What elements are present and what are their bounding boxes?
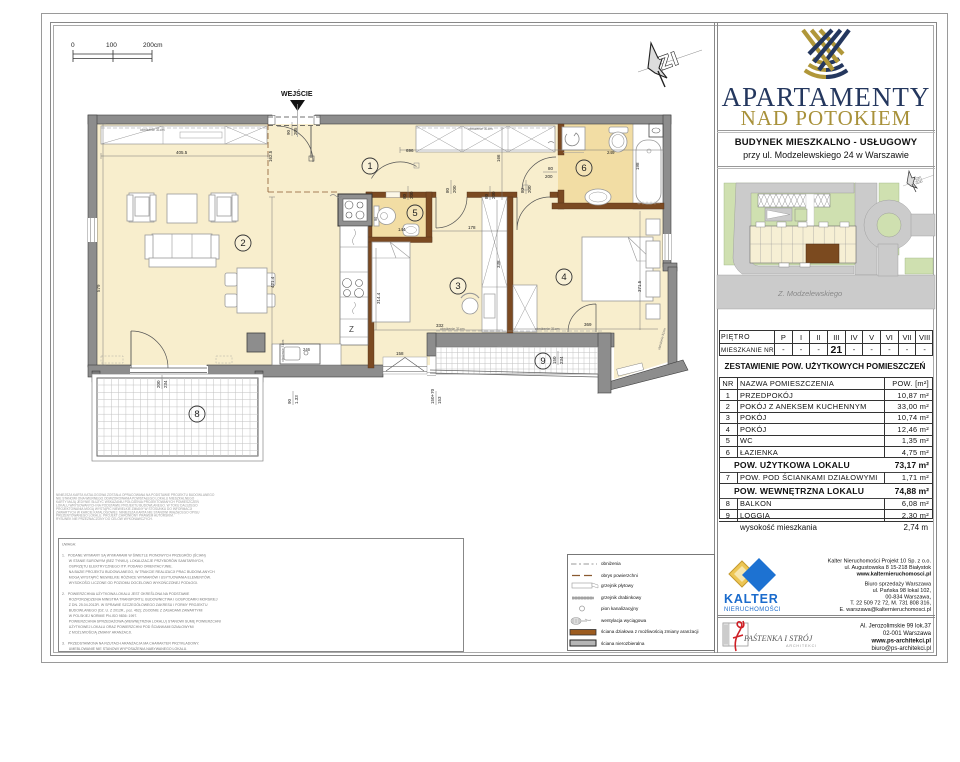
svg-text:166: 166 xyxy=(496,154,501,162)
svg-text:80: 80 xyxy=(484,193,489,199)
svg-text:4: 4 xyxy=(561,272,566,283)
svg-text:234: 234 xyxy=(559,356,564,364)
svg-text:371.5: 371.5 xyxy=(637,280,642,292)
svg-text:246: 246 xyxy=(303,347,311,352)
svg-text:314.4: 314.4 xyxy=(376,292,381,304)
svg-text:3: 3 xyxy=(455,281,460,292)
svg-text:80: 80 xyxy=(520,187,525,193)
svg-text:9: 9 xyxy=(540,356,545,367)
svg-text:332: 332 xyxy=(436,323,444,328)
svg-text:234: 234 xyxy=(163,380,168,388)
svg-text:150: 150 xyxy=(552,356,557,364)
svg-text:198: 198 xyxy=(635,162,640,170)
svg-text:200cm: 200cm xyxy=(143,42,163,49)
svg-text:WEJŚCIE: WEJŚCIE xyxy=(281,89,313,98)
svg-text:6: 6 xyxy=(581,163,586,174)
svg-text:100: 100 xyxy=(106,42,117,49)
svg-text:150+70: 150+70 xyxy=(430,388,435,404)
svg-text:ZI: ZI xyxy=(914,175,924,186)
svg-text:obniżenie 31cm: obniżenie 31cm xyxy=(281,339,285,362)
svg-text:5: 5 xyxy=(412,208,417,219)
svg-text:421.4: 421.4 xyxy=(270,276,275,288)
svg-text:90: 90 xyxy=(374,217,378,221)
svg-text:162.5: 162.5 xyxy=(268,150,273,162)
svg-text:144: 144 xyxy=(398,227,406,232)
svg-text:205: 205 xyxy=(293,127,298,135)
svg-text:obniżenie 31cm: obniżenie 31cm xyxy=(468,127,493,131)
svg-text:Z. Modzelewskiego: Z. Modzelewskiego xyxy=(777,289,842,298)
svg-text:1.33: 1.33 xyxy=(294,395,299,404)
svg-text:8: 8 xyxy=(194,409,199,420)
svg-text:249: 249 xyxy=(607,150,615,155)
svg-text:1: 1 xyxy=(367,161,372,172)
svg-text:Z: Z xyxy=(349,325,354,334)
svg-text:338: 338 xyxy=(496,260,501,268)
svg-text:90: 90 xyxy=(286,129,291,135)
svg-text:200: 200 xyxy=(527,185,532,193)
svg-text:obniżenie 31cm: obniżenie 31cm xyxy=(140,128,165,132)
svg-text:200: 200 xyxy=(491,191,496,199)
svg-text:153: 153 xyxy=(437,396,442,404)
svg-text:80: 80 xyxy=(548,166,554,171)
svg-text:200: 200 xyxy=(452,185,457,193)
svg-text:405.5: 405.5 xyxy=(176,150,188,155)
svg-text:200: 200 xyxy=(409,191,414,199)
svg-text:369: 369 xyxy=(584,322,592,327)
svg-text:579: 579 xyxy=(96,284,101,292)
svg-text:178: 178 xyxy=(468,225,476,230)
svg-text:obniżenie 31cm: obniżenie 31cm xyxy=(440,327,465,331)
svg-text:200: 200 xyxy=(545,174,553,179)
svg-text:696: 696 xyxy=(406,148,414,153)
svg-text:200: 200 xyxy=(156,380,161,388)
svg-text:158: 158 xyxy=(396,351,404,356)
svg-text:2: 2 xyxy=(240,238,245,249)
svg-text:90: 90 xyxy=(287,398,292,404)
svg-text:80: 80 xyxy=(445,187,450,193)
svg-text:0: 0 xyxy=(71,42,75,49)
svg-text:80: 80 xyxy=(402,193,407,199)
